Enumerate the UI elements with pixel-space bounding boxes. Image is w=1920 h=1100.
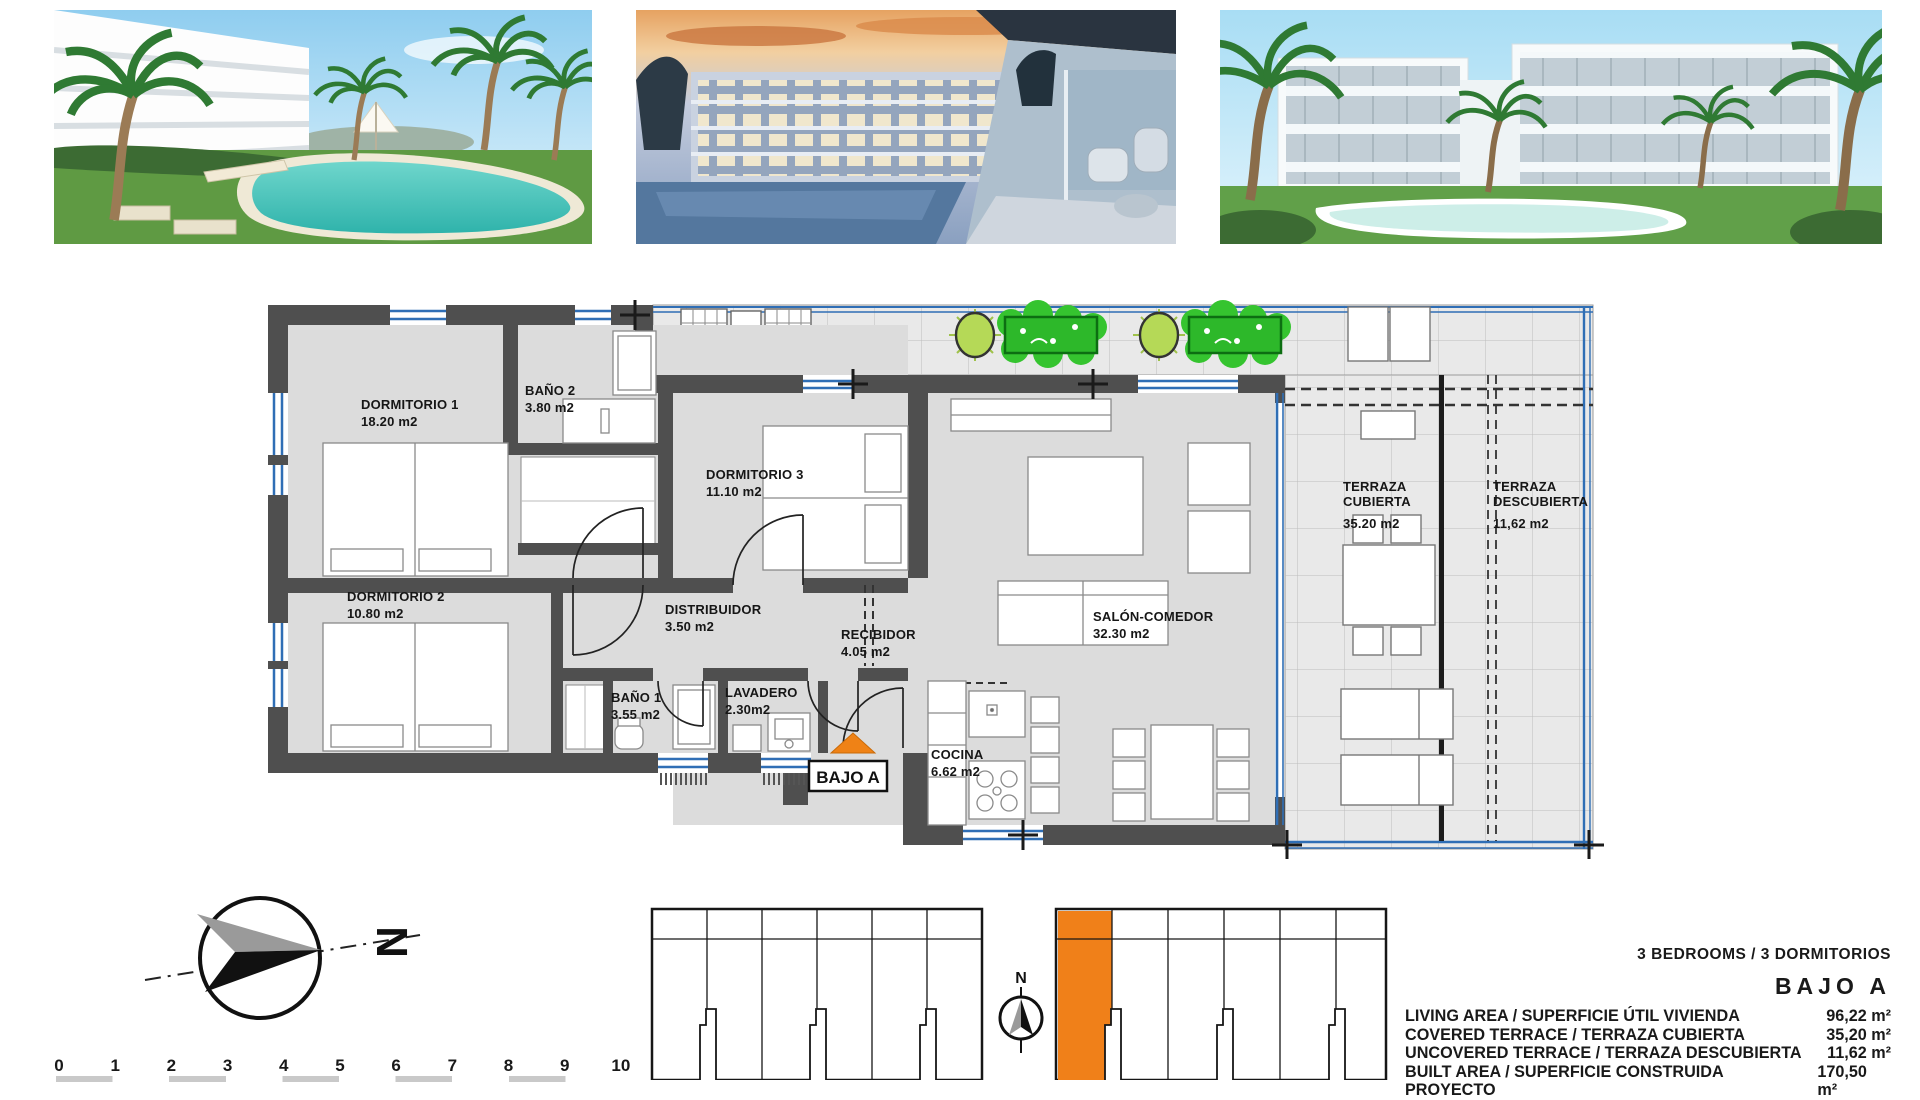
row-label: COVERED TERRACE / TERRAZA CUBIERTA — [1405, 1026, 1745, 1045]
room-label-bano-1: BAÑO 1 — [611, 690, 661, 705]
key-plan-left-building — [652, 909, 982, 1080]
room-area-dormitorio-1: 18.20 m2 — [361, 414, 418, 429]
room-area-dormitorio-2: 10.80 m2 — [347, 606, 404, 621]
row-label: LIVING AREA / SUPERFICIE ÚTIL VIVIENDA — [1405, 1007, 1740, 1026]
room-area-bano-1: 3.55 m2 — [611, 707, 660, 722]
key-plan-highlight-unit — [1058, 911, 1112, 1080]
room-area-bano-2: 3.80 m2 — [525, 400, 574, 415]
photo-pool-garden — [54, 10, 592, 244]
room-label-dormitorio-2: DORMITORIO 2 — [347, 589, 445, 604]
row-value: 35,20 m² — [1826, 1026, 1891, 1045]
scale-tick: 10 — [610, 1056, 632, 1076]
room-area-dormitorio-3: 11.10 m2 — [706, 484, 762, 499]
unit-summary: 3 BEDROOMS / 3 DORMITORIOS BAJO A LIVING… — [1405, 946, 1891, 1100]
scale-tick: 7 — [441, 1056, 463, 1076]
area-table: LIVING AREA / SUPERFICIE ÚTIL VIVIENDA 9… — [1405, 1007, 1891, 1100]
scale-bar: 0 1 2 3 4 5 6 7 8 9 10 — [48, 1056, 632, 1076]
table-row: BUILT AREA / SUPERFICIE CONSTRUIDA PROYE… — [1405, 1063, 1891, 1100]
compass-rose-icon: N — [135, 880, 435, 1040]
photo-building-elevation — [1220, 10, 1882, 244]
key-plan: N — [648, 903, 1390, 1080]
svg-text:CUBIERTA: CUBIERTA — [1343, 494, 1411, 509]
table-row: LIVING AREA / SUPERFICIE ÚTIL VIVIENDA 9… — [1405, 1007, 1891, 1026]
photo-dusk-terrace — [636, 10, 1176, 244]
scale-bar-strip — [56, 1076, 622, 1082]
pool-garden-render-image — [54, 10, 592, 244]
room-label-terraza-descubierta: TERRAZA — [1493, 479, 1557, 494]
scale-tick: 9 — [554, 1056, 576, 1076]
room-label-lavadero: LAVADERO — [725, 685, 798, 700]
room-area-terraza-descubierta: 11,62 m2 — [1493, 516, 1549, 531]
room-area-lavadero: 2.30m2 — [725, 702, 770, 717]
scale-tick: 2 — [160, 1056, 182, 1076]
room-label-recibidor: RECIBIDOR — [841, 627, 916, 642]
room-label-terraza-cubierta: TERRAZA — [1343, 479, 1407, 494]
room-label-dormitorio-3: DORMITORIO 3 — [706, 467, 804, 482]
room-area-salon-comedor: 32.30 m2 — [1093, 626, 1150, 641]
row-label: UNCOVERED TERRACE / TERRAZA DESCUBIERTA — [1405, 1044, 1802, 1063]
floor-plan: BAJO A DORMITORIO 1 18.20 m2 BAÑO 2 3.80… — [263, 293, 1608, 859]
building-elevation-render-image — [1220, 10, 1882, 244]
row-value: 170,50 m² — [1817, 1063, 1891, 1100]
summary-unit-title: BAJO A — [1405, 973, 1891, 1000]
key-plan-compass-icon: N — [1000, 970, 1042, 1053]
row-value: 11,62 m² — [1827, 1044, 1891, 1063]
room-area-distribuidor: 3.50 m2 — [665, 619, 714, 634]
scale-tick: 8 — [498, 1056, 520, 1076]
scale-tick: 4 — [273, 1056, 295, 1076]
scale-tick: 0 — [48, 1056, 70, 1076]
row-value: 96,22 m² — [1826, 1007, 1891, 1026]
bedrooms-line: 3 BEDROOMS / 3 DORMITORIOS — [1405, 946, 1891, 964]
unit-label: BAJO A — [816, 768, 880, 787]
scale-tick: 5 — [329, 1056, 351, 1076]
key-plan-north-label: N — [1015, 970, 1027, 987]
key-plan-right-building — [1056, 909, 1386, 1080]
room-label-distribuidor: DISTRIBUIDOR — [665, 602, 762, 617]
table-row: COVERED TERRACE / TERRAZA CUBIERTA 35,20… — [1405, 1026, 1891, 1045]
row-label: BUILT AREA / SUPERFICIE CONSTRUIDA PROYE… — [1405, 1063, 1817, 1100]
scale-tick: 1 — [104, 1056, 126, 1076]
room-area-cocina: 6.62 m2 — [931, 764, 980, 779]
room-label-dormitorio-1: DORMITORIO 1 — [361, 397, 459, 412]
svg-text:DESCUBIERTA: DESCUBIERTA — [1493, 494, 1589, 509]
room-label-cocina: COCINA — [931, 747, 984, 762]
dusk-terrace-render-image — [636, 10, 1176, 244]
scale-tick: 3 — [217, 1056, 239, 1076]
room-label-salon-comedor: SALÓN-COMEDOR — [1093, 609, 1214, 624]
room-label-bano-2: BAÑO 2 — [525, 383, 575, 398]
room-area-terraza-cubierta: 35.20 m2 — [1343, 516, 1400, 531]
scale-tick: 6 — [385, 1056, 407, 1076]
room-area-recibidor: 4.05 m2 — [841, 644, 890, 659]
table-row: UNCOVERED TERRACE / TERRAZA DESCUBIERTA … — [1405, 1044, 1891, 1063]
compass-north-label: N — [367, 926, 416, 958]
